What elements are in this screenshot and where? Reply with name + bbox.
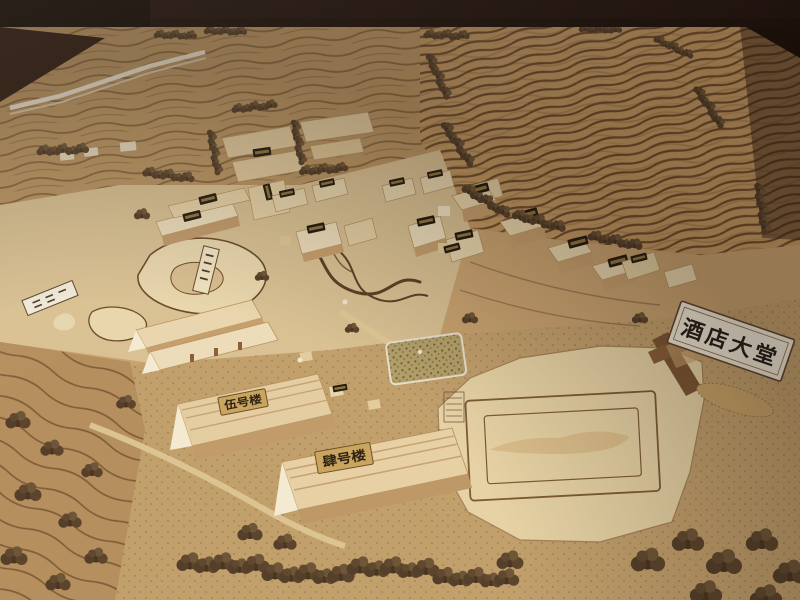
vignette <box>0 0 800 600</box>
model-photo: 酒店大堂 伍号楼 肆号楼 <box>0 0 800 600</box>
scale-model-scene: 酒店大堂 伍号楼 肆号楼 <box>0 0 800 600</box>
